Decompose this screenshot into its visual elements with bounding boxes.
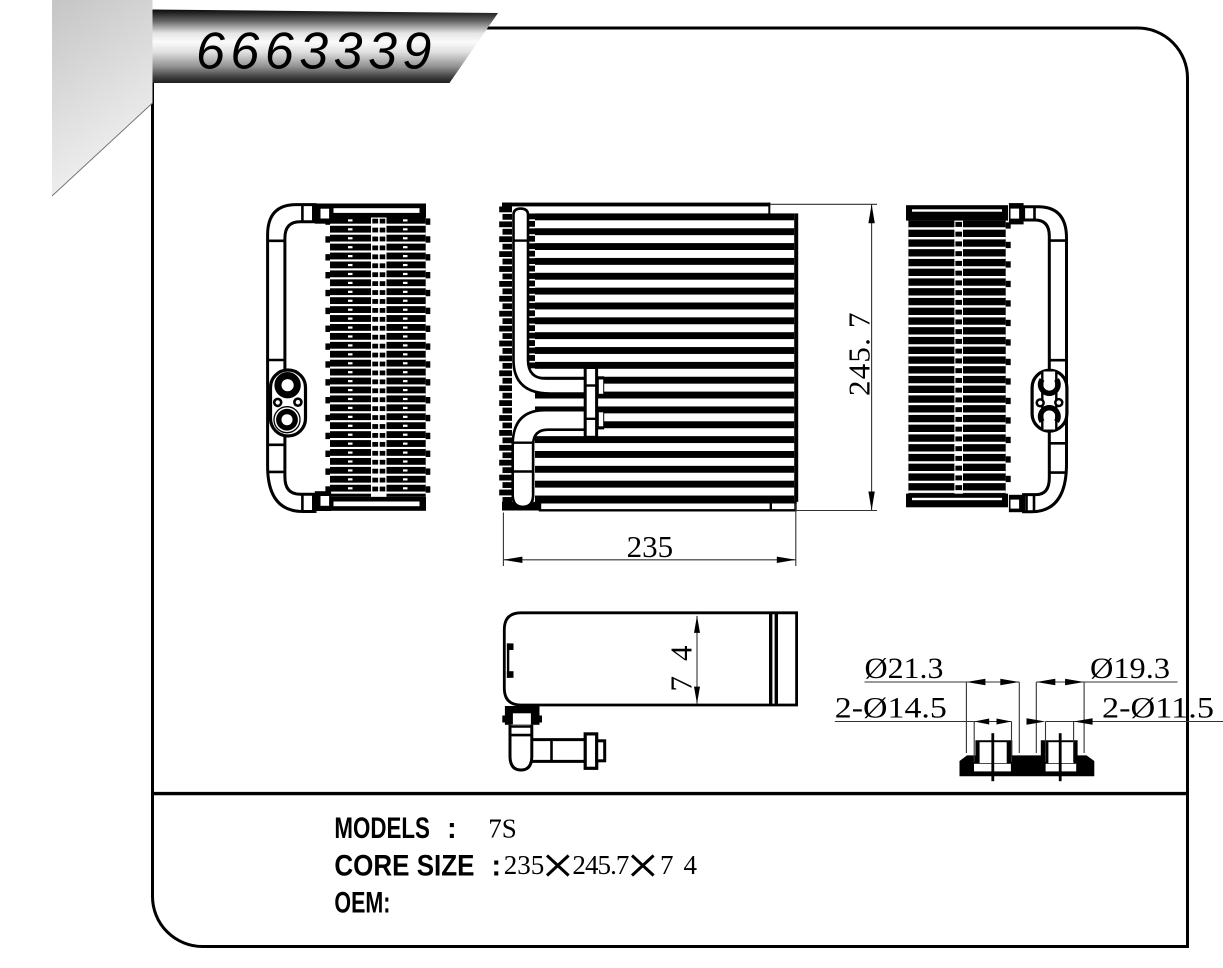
- svg-text:7S: 7S: [488, 814, 517, 844]
- svg-text:74: 74: [664, 631, 699, 692]
- svg-text:245. 7: 245. 7: [842, 311, 877, 396]
- svg-text:6663339: 6663339: [196, 23, 437, 81]
- svg-text::: :: [447, 813, 457, 845]
- svg-text:2-Ø11.5: 2-Ø11.5: [1102, 692, 1214, 725]
- svg-text:245.7: 245.7: [572, 850, 629, 880]
- svg-text:235: 235: [504, 850, 545, 880]
- svg-text:235: 235: [627, 529, 674, 564]
- svg-text:Ø21.3: Ø21.3: [865, 652, 944, 685]
- svg-text:OEM:: OEM:: [334, 887, 390, 919]
- svg-text:74: 74: [660, 850, 707, 880]
- svg-text:Ø19.3: Ø19.3: [1090, 652, 1170, 685]
- svg-text:CORE SIZE: CORE SIZE: [334, 851, 474, 883]
- svg-text:2-Ø14.5: 2-Ø14.5: [835, 692, 947, 725]
- svg-text:MODELS: MODELS: [334, 813, 430, 845]
- svg-text::: :: [491, 851, 501, 883]
